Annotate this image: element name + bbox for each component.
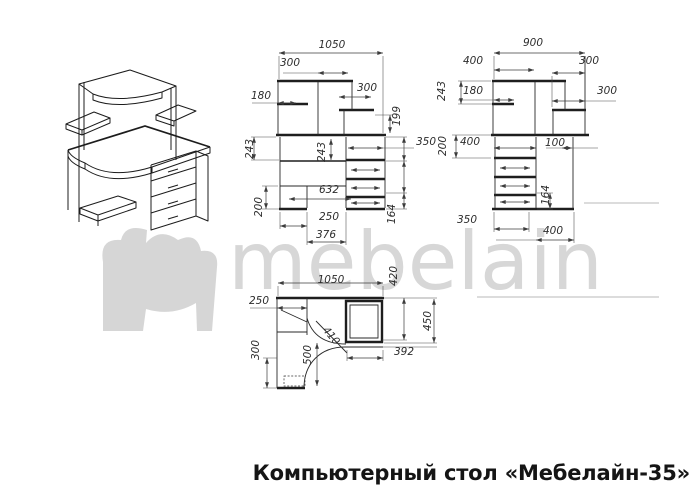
mebelain-logo [102, 228, 217, 331]
dimension-label: 420 [388, 266, 400, 286]
page-title: Компьютерный стол «Мебелайн-35» [253, 461, 690, 485]
dimension-label: 300 [579, 55, 599, 67]
dimension-label: 243 [244, 139, 256, 159]
dimension-label: 1050 [318, 274, 345, 286]
dimension-label: 300 [250, 340, 262, 360]
dimension-label: 300 [280, 57, 300, 69]
dimension-label: 350 [457, 214, 477, 226]
dimension-label: 243 [316, 142, 328, 162]
dimension-label: 180 [463, 85, 483, 97]
dimension-label: 632 [319, 184, 339, 196]
dimension-label: 900 [523, 37, 543, 49]
dimension-label: 164 [386, 204, 398, 224]
dimension-label: 164 [540, 185, 552, 205]
dimension-label: 300 [597, 85, 617, 97]
dimension-label: 300 [357, 82, 377, 94]
dimension-label: 200 [253, 197, 265, 217]
dimension-label: 400 [543, 225, 563, 237]
dimension-label: 250 [319, 211, 339, 223]
dimension-label: 400 [460, 136, 480, 148]
dimension-label: 199 [391, 106, 403, 126]
dimension-label: 400 [463, 55, 483, 67]
dimension-label: 450 [422, 311, 434, 331]
front-view-dimension-labels: 1050300180300199243243350632200250376164 [244, 39, 436, 241]
dimension-label: 180 [251, 90, 271, 102]
watermark: mebelain [102, 203, 659, 331]
dimension-label: 243 [436, 81, 448, 101]
dimension-label: 1050 [319, 39, 346, 51]
dimension-label: 392 [394, 346, 414, 358]
dimension-label: 100 [545, 137, 565, 149]
dimension-label: 200 [437, 136, 449, 156]
dimension-label: 500 [302, 345, 314, 365]
dimension-label: 376 [316, 229, 336, 241]
isometric-view-drawing [66, 70, 210, 230]
dimension-label: 350 [416, 136, 436, 148]
side-view-dimension-labels: 900400300243180300200400100164350400 [436, 37, 617, 237]
dimension-label: 250 [249, 295, 269, 307]
drawing-page: mebelain [0, 0, 700, 495]
